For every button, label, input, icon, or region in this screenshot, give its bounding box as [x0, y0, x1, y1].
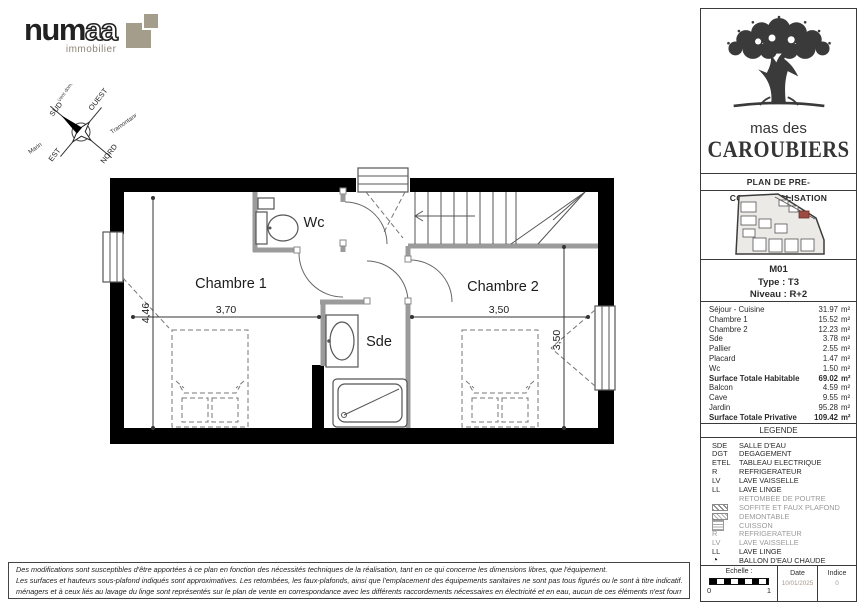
scale-end: 1	[767, 586, 771, 595]
compass-wind-marin: Marin	[28, 142, 44, 156]
compass-label-south: SUD	[47, 100, 64, 118]
site-plan-thumbnail	[701, 191, 856, 260]
legend-row: ETELTABLEAU ELECTRIQUE	[701, 458, 856, 467]
index-label: Indice	[818, 570, 856, 577]
bed-chambre2	[462, 330, 538, 427]
agency-logo-text: numaa immobilier	[24, 14, 116, 55]
bed-chambre1	[172, 330, 248, 427]
wall-top-right	[410, 178, 614, 192]
compass-wind-tramontane: Tramontane	[110, 112, 136, 136]
compass-label-west: OUEST	[86, 86, 109, 112]
project-name-line1: mas des	[701, 120, 856, 137]
door-arc-sde	[367, 261, 408, 302]
agency-name: numaa	[24, 14, 116, 45]
surface-row: Sde3.78m²	[701, 334, 856, 344]
scale-bar	[709, 578, 769, 585]
agency-logo: numaa immobilier	[24, 14, 162, 55]
wall-stub-sde	[312, 365, 324, 428]
legend: SDESALLE D'EAU DGTDEGAGEMENT ETELTABLEAU…	[701, 438, 856, 566]
window-top	[358, 168, 408, 238]
legend-row: DGTDEGAGEMENT	[701, 449, 856, 458]
door-arc-wc	[345, 202, 387, 244]
room-label-chambre2: Chambre 2	[467, 279, 539, 295]
logo-square-small	[142, 14, 158, 30]
hatch-swatch-icon	[712, 504, 728, 511]
hinge-marker	[405, 256, 411, 262]
room-label-chambre1: Chambre 1	[195, 276, 267, 292]
shower	[333, 379, 407, 427]
hinge-marker	[405, 298, 411, 304]
dim-height-right: 3,50	[551, 330, 563, 351]
title-block-footer: Echelle : 0 1 Date 10/01/2025 Indice 0	[701, 566, 856, 601]
surface-row: Chambre 212.23m²	[701, 325, 856, 335]
scale-cell: Echelle : 0 1	[701, 566, 778, 601]
date-value: 10/01/2025	[778, 580, 817, 587]
surface-row: Chambre 115.52m²	[701, 315, 856, 325]
project-logo-section: mas des CAROUBIERS	[701, 9, 856, 174]
legend-row: CUISSON	[701, 521, 856, 530]
room-label-wc: Wc	[304, 215, 325, 231]
surface-row: Balcon4.59m²	[701, 383, 856, 393]
legend-row: RREFRIGERATEUR	[701, 530, 856, 539]
wall-bottom	[110, 428, 614, 444]
agency-name-accent: aa	[85, 12, 116, 47]
hinge-marker	[364, 298, 370, 304]
agency-name-start: num	[24, 12, 85, 47]
legend-row: LVLAVE VAISSELLE	[701, 476, 856, 485]
sink	[326, 315, 358, 367]
surface-row: Jardin95.28m²	[701, 403, 856, 413]
compass-wind-dominant: Vent dominant	[57, 84, 81, 103]
scale-label: Echelle :	[701, 568, 777, 575]
disclaimer-line1: Des modifications sont susceptibles d'êt…	[16, 564, 682, 575]
hinge-marker	[340, 240, 346, 246]
surface-row: Wc1.50m²	[701, 364, 856, 374]
scale-start: 0	[707, 586, 711, 595]
project-name-line2: CAROUBIERS	[707, 136, 849, 164]
plan-sheet: { "branding": { "name_start": "num", "na…	[0, 0, 860, 608]
disclaimer-line3: ménagers et à ceux liés au lavage du lin…	[16, 586, 682, 597]
floor-plan: 4,46 3,70 3,50 3,50 Chambre 1 Chambre 2 …	[83, 160, 633, 465]
dim-width-chambre1: 3,70	[216, 304, 237, 316]
surface-row-total-privative: Surface Totale Privative109.42m²	[701, 413, 856, 423]
stairs	[415, 192, 585, 244]
legend-row: LLLAVE LINGE	[701, 485, 856, 494]
carob-tree-icon	[718, 13, 840, 117]
door-arc-chambre2	[410, 260, 452, 302]
legal-disclaimer: Des modifications sont susceptibles d'êt…	[8, 562, 690, 599]
surface-row: Placard1.47m²	[701, 354, 856, 364]
unit-code: M01	[701, 264, 856, 277]
unit-info: M01 Type : T3 Niveau : R+2	[701, 260, 856, 302]
hinge-marker	[340, 188, 346, 194]
agency-logo-icon	[126, 14, 162, 52]
surface-row: Cave9.55m²	[701, 393, 856, 403]
disclaimer-line2: Les surfaces et hauteurs sous-plafond in…	[16, 575, 682, 586]
water-heater-icon: ◔	[712, 557, 718, 565]
document-title: PLAN DE PRE-COMMERCIALISATION	[701, 174, 856, 191]
dim-width-chambre2: 3,50	[489, 304, 510, 316]
hinge-marker	[294, 247, 300, 253]
surface-table: Séjour - Cuisine31.97m² Chambre 115.52m²…	[701, 302, 856, 424]
legend-row: RETOMBEE DE POUTRE	[701, 494, 856, 503]
dim-height-left: 4,46	[140, 303, 152, 324]
wall-right-upper	[598, 178, 614, 308]
surface-row-total-habitable: Surface Totale Habitable69.02m²	[701, 374, 856, 384]
compass-label-east: EST	[46, 146, 62, 163]
legend-row: SOFFITE ET FAUX PLAFOND	[701, 503, 856, 512]
surface-row: Pallier2.55m²	[701, 344, 856, 354]
wall-left-upper	[110, 178, 124, 234]
index-cell: Indice 0	[818, 566, 856, 601]
wall-top-left	[110, 178, 356, 192]
toilet	[256, 198, 298, 244]
index-value: 0	[818, 580, 856, 587]
legend-title: LEGENDE	[701, 423, 856, 438]
wall-left-lower	[110, 280, 124, 444]
unit-type: Type : T3	[701, 277, 856, 290]
door-arc-chambre1	[299, 253, 343, 297]
legend-row: LLLAVE LINGE	[701, 547, 856, 556]
unit-level: Niveau : R+2	[701, 289, 856, 302]
title-block-sidebar: mas des CAROUBIERS PLAN DE PRE-COMMERCIA…	[700, 8, 857, 602]
legend-row: SDESALLE D'EAU	[701, 441, 856, 450]
room-label-sde: Sde	[366, 334, 392, 350]
legend-row: ◔BALLON D'EAU CHAUDE	[701, 556, 856, 565]
date-label: Date	[778, 570, 817, 577]
wall-right-lower	[598, 388, 614, 444]
date-cell: Date 10/01/2025	[778, 566, 818, 601]
legend-row: LVLAVE VAISSELLE	[701, 538, 856, 547]
highlighted-unit	[799, 211, 809, 218]
surface-row: Séjour - Cuisine31.97m²	[701, 305, 856, 315]
legend-row: RREFRIGERATEUR	[701, 467, 856, 476]
